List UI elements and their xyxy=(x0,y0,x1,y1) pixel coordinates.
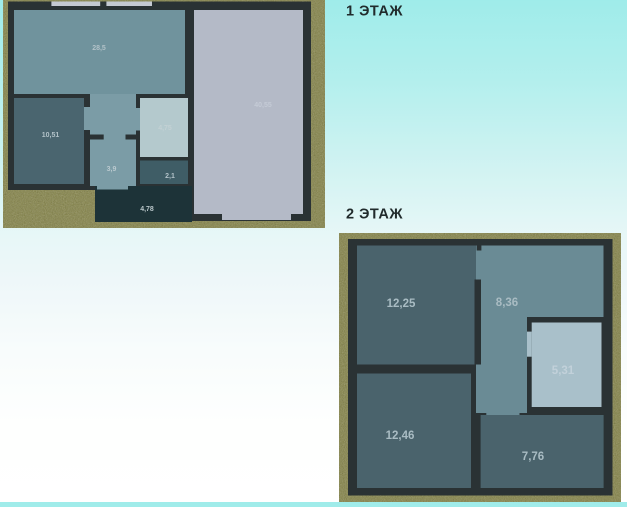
svg-text:4,78: 4,78 xyxy=(140,206,154,213)
svg-text:28,5: 28,5 xyxy=(92,45,106,52)
svg-text:5,31: 5,31 xyxy=(552,365,575,377)
svg-text:2,1: 2,1 xyxy=(165,173,175,180)
svg-text:1 ЭТАЖ: 1 ЭТАЖ xyxy=(346,4,403,20)
svg-text:8,36: 8,36 xyxy=(496,297,518,309)
svg-text:12,25: 12,25 xyxy=(387,298,416,310)
svg-text:3,9: 3,9 xyxy=(107,166,117,173)
svg-text:10,51: 10,51 xyxy=(42,132,60,139)
svg-text:40,55: 40,55 xyxy=(254,102,272,109)
svg-text:12,46: 12,46 xyxy=(386,430,415,442)
svg-text:4,75: 4,75 xyxy=(158,125,172,132)
svg-text:7,76: 7,76 xyxy=(522,451,544,463)
svg-text:2 ЭТАЖ: 2 ЭТАЖ xyxy=(346,207,403,223)
